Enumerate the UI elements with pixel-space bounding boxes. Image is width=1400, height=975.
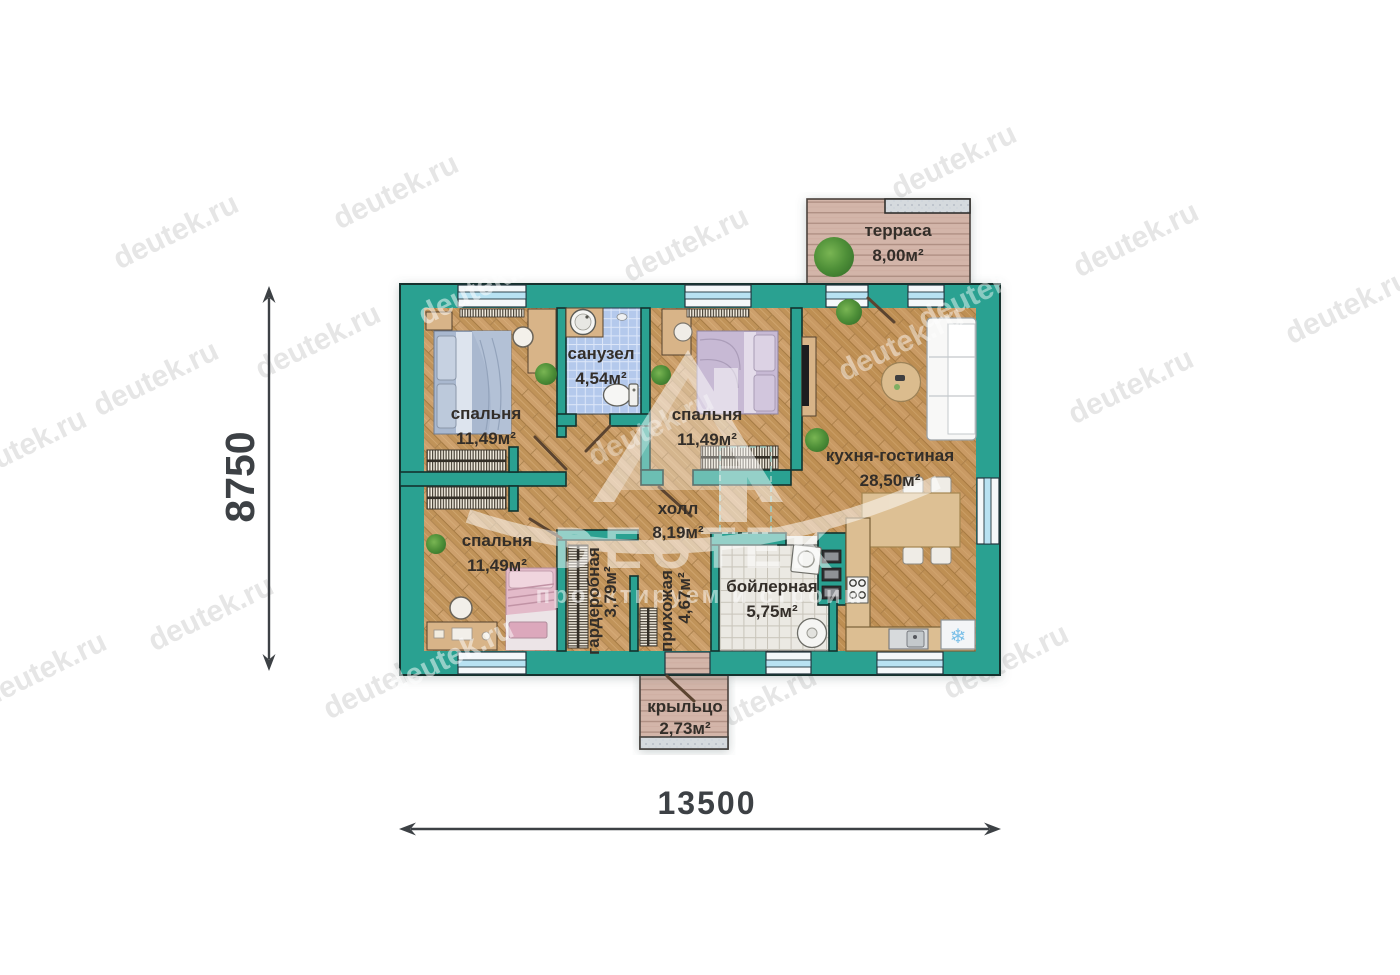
svg-text:8,19м²: 8,19м² xyxy=(652,523,704,542)
svg-text:спальня: спальня xyxy=(462,531,533,550)
svg-text:8750: 8750 xyxy=(217,431,263,522)
svg-text:холл: холл xyxy=(658,499,699,518)
svg-text:❄: ❄ xyxy=(950,626,967,648)
svg-text:бойлерная: бойлерная xyxy=(726,577,817,596)
svg-text:прихожая: прихожая xyxy=(657,570,676,652)
svg-text:11,49м²: 11,49м² xyxy=(677,430,737,449)
svg-text:28,50м²: 28,50м² xyxy=(860,471,921,490)
svg-text:2,73м²: 2,73м² xyxy=(659,719,711,738)
svg-text:13500: 13500 xyxy=(658,785,757,821)
svg-text:спальня: спальня xyxy=(451,404,522,423)
svg-text:3,79м²: 3,79м² xyxy=(601,566,620,618)
svg-text:11,49м²: 11,49м² xyxy=(467,556,527,575)
svg-text:кухня-гостиная: кухня-гостиная xyxy=(826,446,954,465)
svg-text:спальня: спальня xyxy=(672,405,743,424)
svg-text:4,54м²: 4,54м² xyxy=(575,369,627,388)
svg-text:крыльцо: крыльцо xyxy=(647,697,723,716)
svg-text:санузел: санузел xyxy=(567,344,634,363)
svg-text:4,67м²: 4,67м² xyxy=(675,572,694,624)
svg-text:11,49м²: 11,49м² xyxy=(456,429,516,448)
svg-text:8,00м²: 8,00м² xyxy=(872,246,924,265)
svg-text:терраса: терраса xyxy=(864,221,932,240)
svg-text:5,75м²: 5,75м² xyxy=(746,602,798,621)
